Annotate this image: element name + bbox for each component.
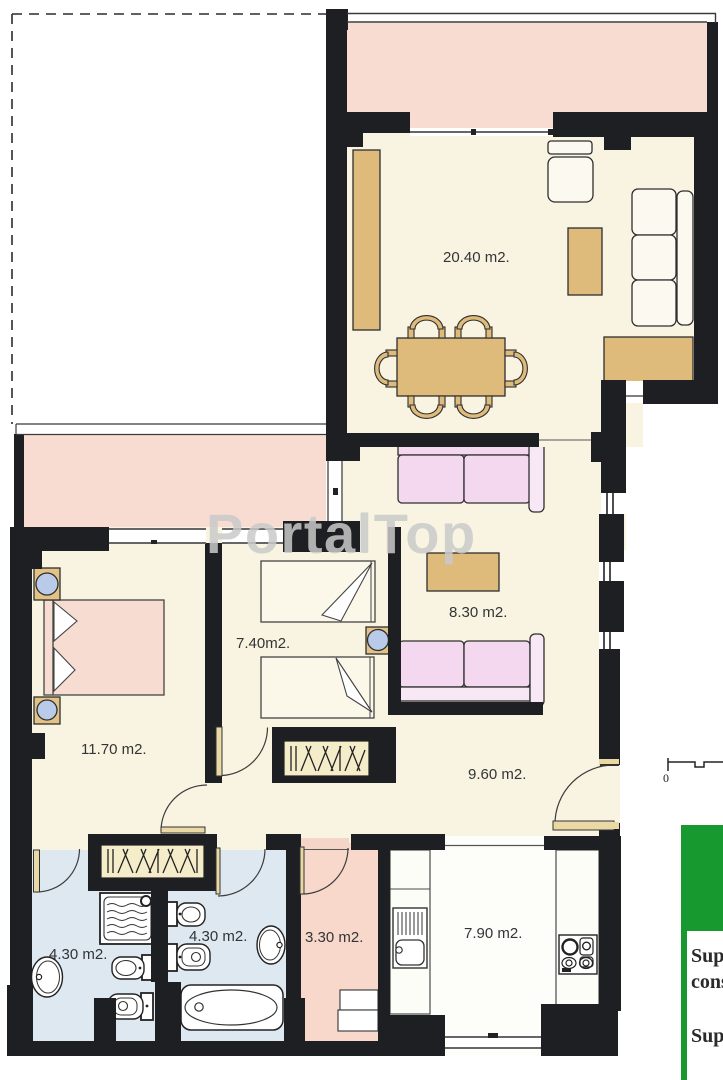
- svg-text:0: 0: [663, 771, 669, 785]
- svg-text:9.60 m2.: 9.60 m2.: [468, 766, 526, 783]
- svg-text:8.30 m2.: 8.30 m2.: [449, 604, 507, 621]
- svg-text:4.30 m2.: 4.30 m2.: [189, 928, 247, 945]
- svg-text:7.40m2.: 7.40m2.: [236, 635, 290, 652]
- svg-text:4.30 m2.: 4.30 m2.: [49, 946, 107, 963]
- svg-text:construida: construida: [691, 971, 723, 993]
- svg-text:11.70 m2.: 11.70 m2.: [81, 741, 147, 758]
- svg-text:20.40 m2.: 20.40 m2.: [443, 249, 510, 266]
- svg-text:Superficie: Superficie: [691, 945, 723, 967]
- svg-text:3.30 m2.: 3.30 m2.: [305, 929, 363, 946]
- svg-text:PortalTop: PortalTop: [206, 502, 477, 565]
- svg-text:7.90 m2.: 7.90 m2.: [464, 925, 522, 942]
- svg-text:Superficie: Superficie: [691, 1025, 723, 1047]
